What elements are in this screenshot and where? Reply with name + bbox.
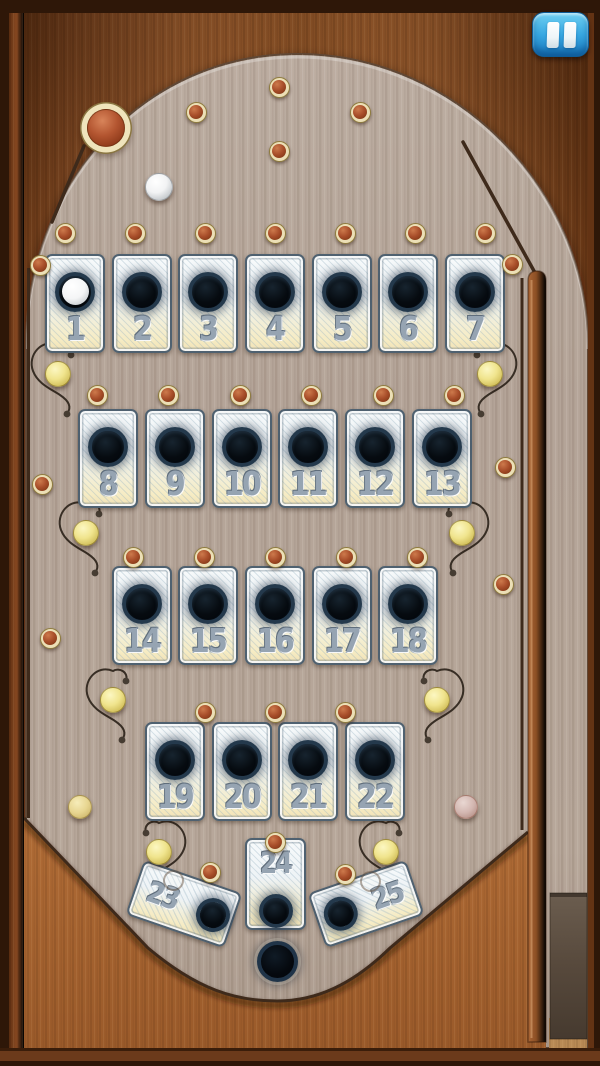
slot-hole	[222, 740, 262, 780]
pin	[40, 628, 61, 649]
pin	[55, 223, 76, 244]
slot-number: 5	[318, 312, 366, 345]
pause-button[interactable]	[532, 12, 589, 57]
slot-number: 15	[184, 624, 232, 657]
slot-card-16: 16	[245, 566, 305, 665]
slot-hole	[255, 584, 295, 624]
ball-yellow	[373, 839, 399, 865]
slot-hole	[188, 584, 228, 624]
slot-card-22: 22	[345, 722, 405, 821]
slot-number: 21	[284, 780, 332, 813]
pin	[407, 547, 428, 568]
slot-number: 1	[51, 312, 99, 345]
empty-pin-hole	[163, 870, 184, 891]
pin	[444, 385, 465, 406]
pin	[265, 223, 286, 244]
ball-yellow	[100, 687, 126, 713]
slot-card-8: 8	[78, 409, 138, 508]
pin	[335, 702, 356, 723]
slot-number: 11	[284, 467, 332, 500]
slot-number: 4	[251, 312, 299, 345]
slot-card-4: 4	[245, 254, 305, 353]
slot-hole	[288, 740, 328, 780]
slot-card-11: 11	[278, 409, 338, 508]
pin	[265, 547, 286, 568]
pin	[493, 574, 514, 595]
slot-hole	[355, 740, 395, 780]
pin	[265, 702, 286, 723]
frame-left	[0, 0, 9, 1066]
slot-card-7: 7	[445, 254, 505, 353]
slot-number: 19	[151, 780, 199, 813]
pin	[373, 385, 394, 406]
slot-hole	[122, 272, 162, 312]
slot-card-1: 1	[45, 254, 105, 353]
slot-hole	[191, 893, 234, 936]
pin	[502, 254, 523, 275]
pin	[123, 547, 144, 568]
pin	[269, 77, 290, 98]
slot-hole	[259, 894, 293, 928]
pin	[350, 102, 371, 123]
pin	[32, 474, 53, 495]
slot-number: 17	[318, 624, 366, 657]
frame-right	[594, 0, 600, 1066]
slot-hole	[422, 427, 462, 467]
slot-card-13: 13	[412, 409, 472, 508]
slot-number: 10	[218, 467, 266, 500]
slot-hole	[455, 272, 495, 312]
slot-number: 6	[384, 312, 432, 345]
pin	[265, 832, 286, 853]
empty-pin-hole	[360, 871, 381, 892]
big-red-pin-ball	[87, 109, 125, 147]
ball-yellow	[477, 361, 503, 387]
ball-white	[145, 173, 173, 201]
slot-number: 2	[118, 312, 166, 345]
slot-number: 22	[351, 780, 399, 813]
pause-icon	[564, 22, 577, 48]
slot-number: 7	[451, 312, 499, 345]
pin	[125, 223, 146, 244]
slot-hole	[388, 584, 428, 624]
pin	[335, 864, 356, 885]
slot-hole	[122, 584, 162, 624]
slot-hole	[88, 427, 128, 467]
ball-yellow	[146, 839, 172, 865]
slot-card-3: 3	[178, 254, 238, 353]
pin	[158, 385, 179, 406]
slot-number: 3	[184, 312, 232, 345]
slot-number: 14	[118, 624, 166, 657]
slot-card-10: 10	[212, 409, 272, 508]
slot-card-17: 17	[312, 566, 372, 665]
slot-number: 12	[351, 467, 399, 500]
slot-number: 18	[384, 624, 432, 657]
ball-yellow	[449, 520, 475, 546]
slot-card-2: 2	[112, 254, 172, 353]
slot-hole	[155, 740, 195, 780]
ball-yellow	[424, 687, 450, 713]
game-screen: 1 2 3 4 5 6 7 8	[0, 0, 600, 1066]
bottom-exit-hole	[257, 941, 298, 982]
pin	[195, 223, 216, 244]
slot-hole	[188, 272, 228, 312]
slot-hole	[322, 584, 362, 624]
ball-yellow	[45, 361, 71, 387]
slot-card-9: 9	[145, 409, 205, 508]
slot-card-14: 14	[112, 566, 172, 665]
pin	[269, 141, 290, 162]
pin	[335, 223, 356, 244]
ball-pink	[454, 795, 478, 819]
slot-hole	[319, 892, 362, 935]
slot-number: 8	[84, 467, 132, 500]
slot-card-6: 6	[378, 254, 438, 353]
slot-number: 13	[418, 467, 466, 500]
slot-hole	[388, 272, 428, 312]
white-ball-in-slot	[62, 278, 89, 305]
pin	[30, 255, 51, 276]
slot-hole	[255, 272, 295, 312]
pin	[200, 862, 221, 883]
ball-yellow	[73, 520, 99, 546]
pause-icon	[547, 22, 560, 48]
slot-hole	[222, 427, 262, 467]
ball-pale	[68, 795, 92, 819]
plunger-rod[interactable]	[550, 893, 587, 1039]
pin	[475, 223, 496, 244]
slot-card-5: 5	[312, 254, 372, 353]
pin	[230, 385, 251, 406]
frame-top	[0, 0, 600, 13]
pin	[405, 223, 426, 244]
pin	[301, 385, 322, 406]
slot-hole	[288, 427, 328, 467]
pin	[495, 457, 516, 478]
pin	[194, 547, 215, 568]
pin	[336, 547, 357, 568]
slot-card-15: 15	[178, 566, 238, 665]
slot-card-18: 18	[378, 566, 438, 665]
slot-hole	[155, 427, 195, 467]
slot-card-19: 19	[145, 722, 205, 821]
slot-number: 20	[218, 780, 266, 813]
slot-number: 9	[151, 467, 199, 500]
slot-card-20: 20	[212, 722, 272, 821]
slot-hole	[322, 272, 362, 312]
slot-hole	[355, 427, 395, 467]
pin	[186, 102, 207, 123]
slot-card-12: 12	[345, 409, 405, 508]
slot-card-21: 21	[278, 722, 338, 821]
slot-number: 16	[251, 624, 299, 657]
pin	[195, 702, 216, 723]
slot-number: 24	[251, 849, 300, 878]
pin	[87, 385, 108, 406]
